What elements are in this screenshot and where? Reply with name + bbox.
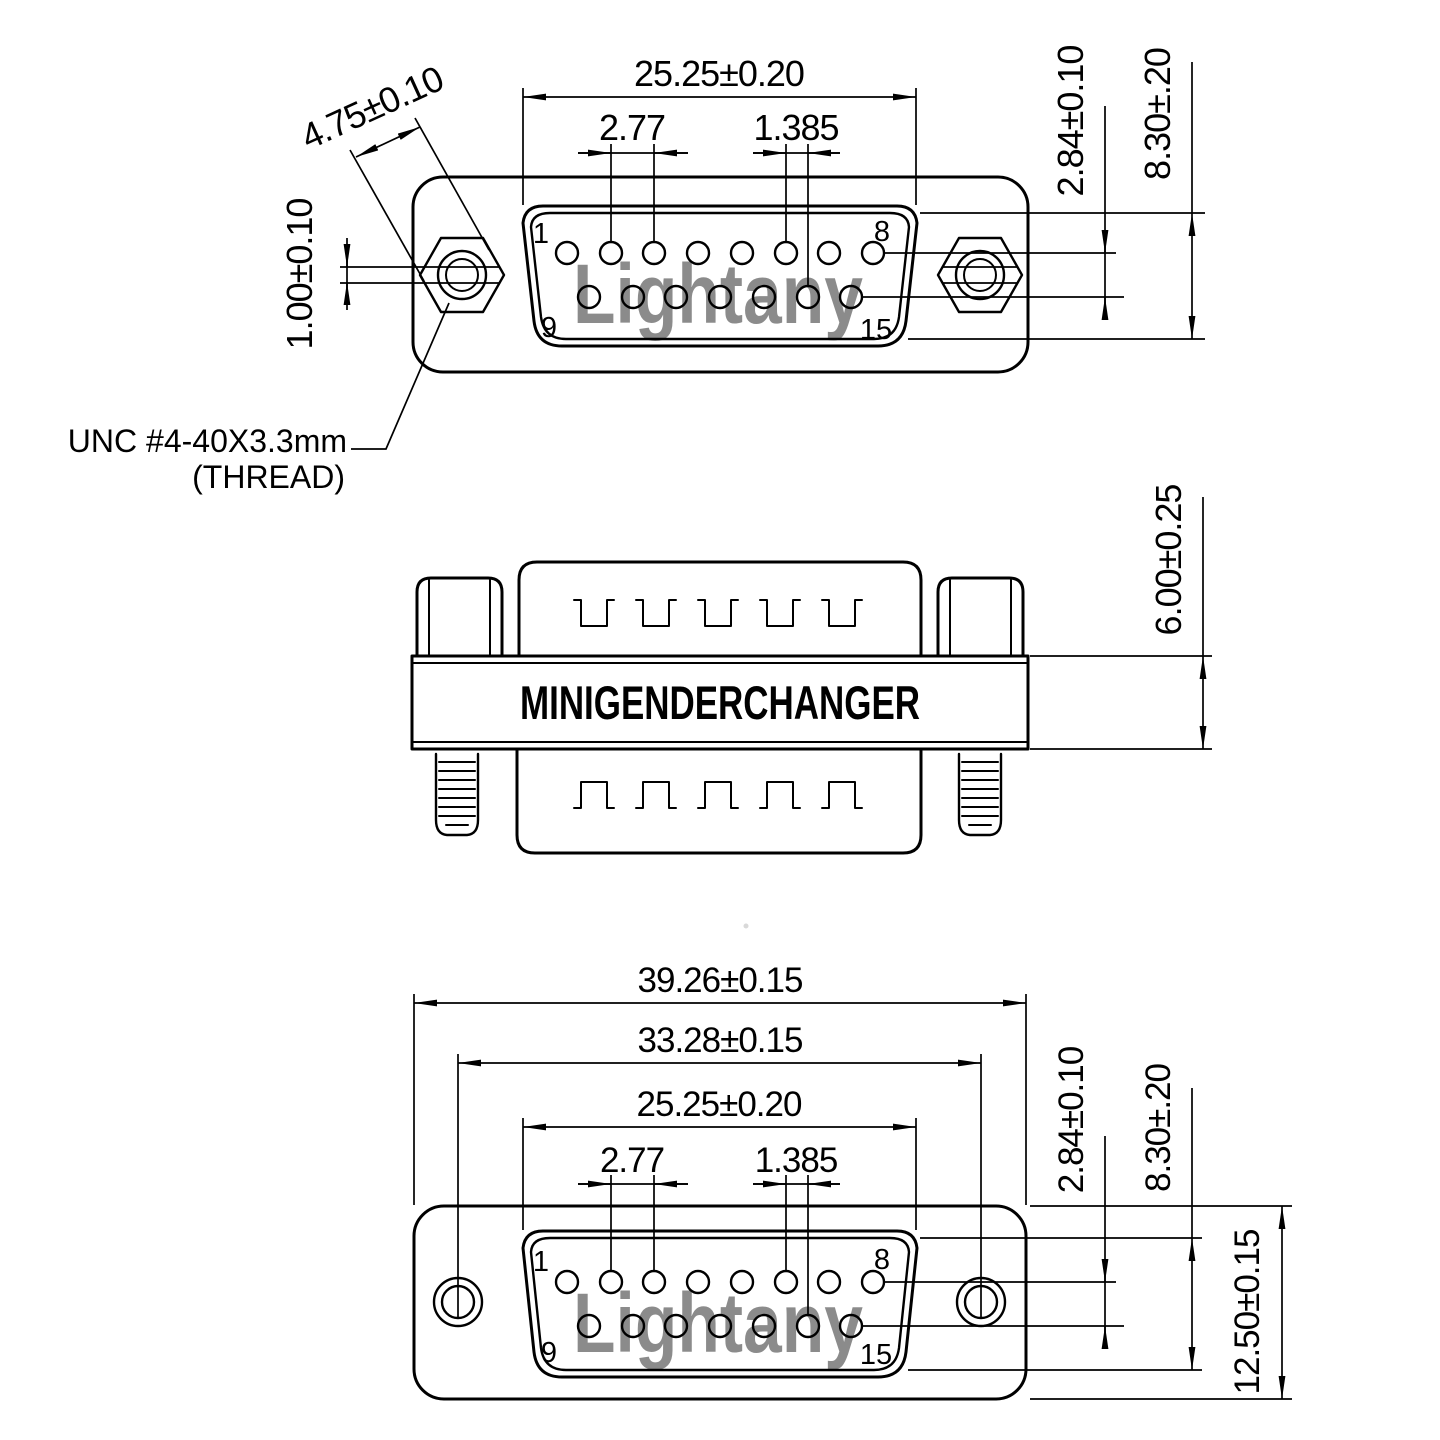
thread-note-line1: UNC #4-40X3.3mm [68, 423, 347, 459]
svg-text:25.25±0.20: 25.25±0.20 [637, 1085, 802, 1124]
contact-slots-top [574, 600, 862, 626]
contact-slots-bottom [574, 782, 862, 808]
front-view-top: Lightany 1 8 9 15 [68, 46, 1205, 495]
svg-text:1.00±0.10: 1.00±0.10 [279, 199, 320, 350]
dim-pin-span-bottom: 25.25±0.20 [523, 1085, 916, 1230]
pin-label-8: 8 [874, 1244, 890, 1276]
brand-label: MINIGENDERCHANGER [520, 676, 920, 729]
shroud-top [519, 562, 921, 657]
svg-text:1.385: 1.385 [755, 1141, 838, 1180]
screw-left [436, 754, 478, 835]
dsub15-gender-changer-drawing: Lightany 1 8 9 15 [0, 0, 1440, 1440]
dim-row-gap-bottom: 2.84±0.10 [862, 1046, 1124, 1349]
technical-drawing-page: Lightany 1 8 9 15 [0, 0, 1440, 1440]
dim-row-gap-top: 2.84±0.10 [862, 46, 1124, 320]
pin-label-8: 8 [874, 216, 890, 248]
thread-note-line2: (THREAD) [192, 459, 345, 495]
dim-nut-width: 4.75±0.10 [295, 58, 489, 281]
shroud-bottom [517, 749, 921, 853]
screw-right [959, 754, 1001, 835]
pin-label-1: 1 [533, 1246, 549, 1278]
svg-text:25.25±0.20: 25.25±0.20 [634, 53, 804, 94]
hex-nut-left [340, 238, 504, 312]
svg-text:6.00±0.25: 6.00±0.25 [1148, 485, 1189, 636]
page-dot [744, 924, 749, 929]
svg-text:2.84±0.10: 2.84±0.10 [1050, 46, 1091, 197]
svg-text:39.26±0.15: 39.26±0.15 [638, 961, 803, 1000]
thread-note: UNC #4-40X3.3mm (THREAD) [68, 303, 449, 495]
svg-text:8.30±.20: 8.30±.20 [1137, 48, 1178, 180]
svg-text:2.77: 2.77 [600, 1141, 664, 1180]
hex-nut-right [938, 238, 1022, 312]
svg-text:4.75±0.10: 4.75±0.10 [295, 58, 449, 158]
svg-text:2.84±0.10: 2.84±0.10 [1052, 1046, 1091, 1193]
svg-text:12.50±0.15: 12.50±0.15 [1228, 1230, 1267, 1395]
dim-slot-width: 1.00±0.10 [279, 199, 347, 350]
pin-label-9: 9 [541, 312, 557, 344]
pin-label-9: 9 [541, 1337, 557, 1369]
dim-band-thickness: 6.00±0.25 [1030, 485, 1212, 749]
front-view-bottom: Lightany 1 8 9 15 [414, 961, 1292, 1399]
hex-standoff-left [417, 578, 502, 656]
dim-body-width: 39.26±0.15 [414, 961, 1026, 1205]
pin-label-15: 15 [860, 314, 892, 346]
svg-text:33.28±0.15: 33.28±0.15 [638, 1021, 803, 1060]
pin-label-1: 1 [533, 218, 549, 250]
svg-text:2.77: 2.77 [599, 107, 665, 148]
hex-standoff-right [938, 578, 1023, 656]
side-view: MINIGENDERCHANGER [412, 485, 1212, 853]
svg-text:8.30±.20: 8.30±.20 [1139, 1063, 1178, 1192]
dim-pin-span-top: 25.25±0.20 [523, 53, 916, 205]
svg-text:1.385: 1.385 [753, 107, 838, 148]
pin-label-15: 15 [860, 1339, 892, 1371]
dim-pitch-top: 2.77 [578, 107, 688, 241]
